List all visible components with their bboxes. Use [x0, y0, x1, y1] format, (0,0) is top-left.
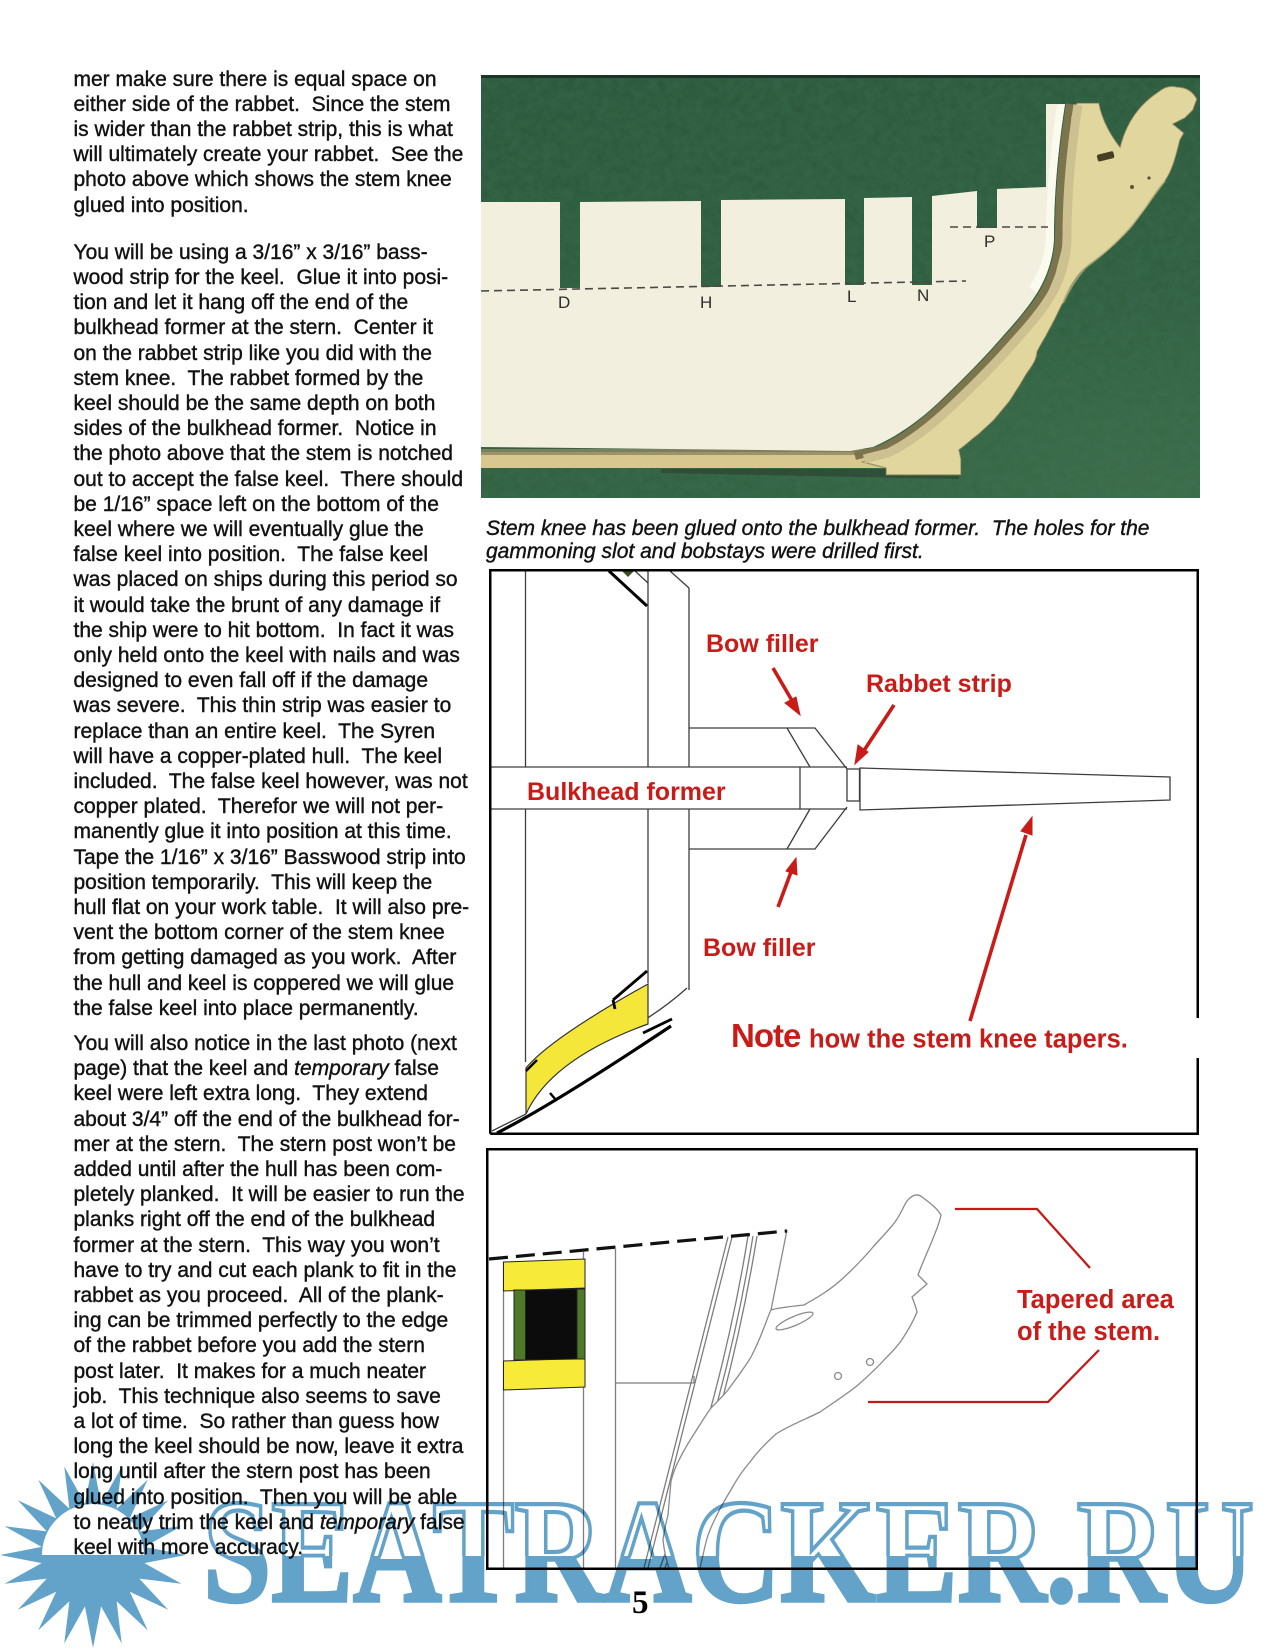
svg-text:of the stem.: of the stem.: [1017, 1318, 1160, 1346]
svg-text:P: P: [984, 232, 995, 251]
svg-text:how the stem knee tapers.: how the stem knee tapers.: [809, 1026, 1128, 1054]
svg-text:Rabbet strip: Rabbet strip: [866, 670, 1012, 698]
svg-text:Tapered area: Tapered area: [1017, 1286, 1175, 1314]
svg-text:Bow filler: Bow filler: [706, 630, 819, 658]
svg-text:L: L: [847, 287, 856, 306]
svg-text:Bow filler: Bow filler: [703, 934, 816, 962]
svg-text:Bulkhead former: Bulkhead former: [527, 778, 726, 806]
svg-text:D: D: [558, 293, 570, 312]
svg-text:N: N: [917, 286, 929, 305]
svg-text:H: H: [700, 293, 712, 312]
svg-text:Note: Note: [731, 1017, 801, 1054]
